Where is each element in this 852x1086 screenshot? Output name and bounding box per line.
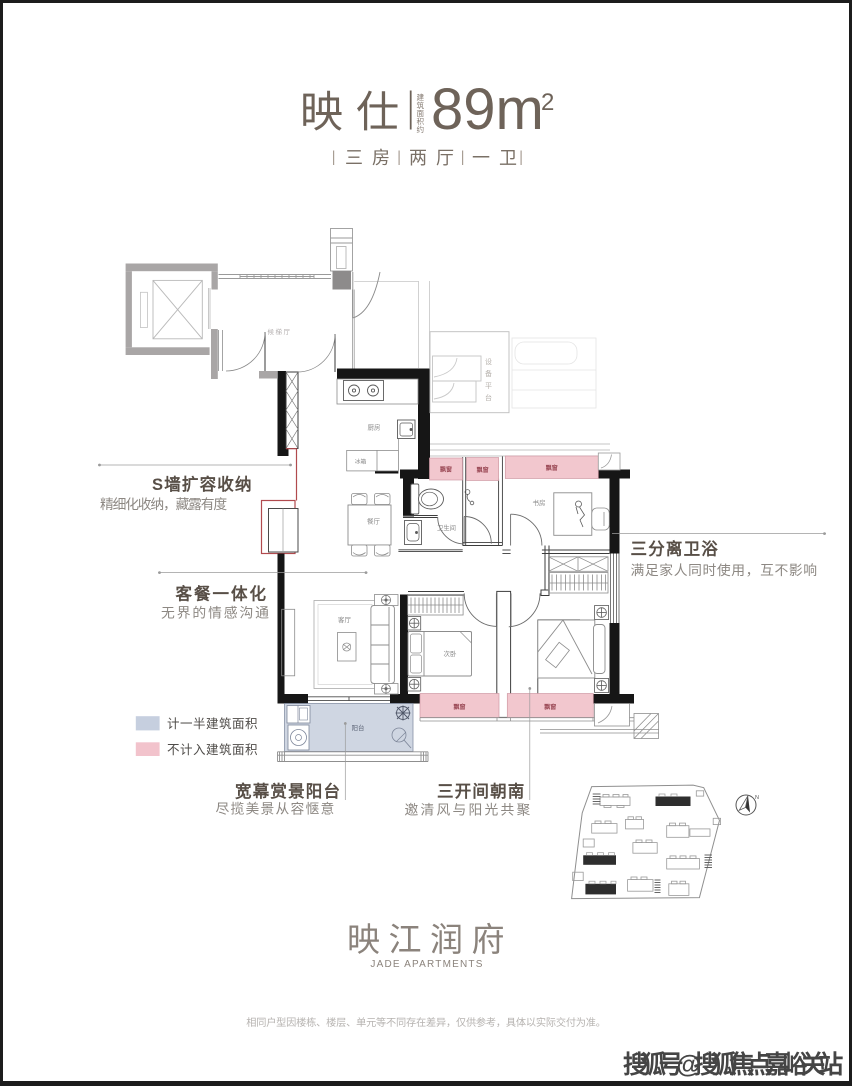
svg-text:飘窗: 飘窗 [545, 464, 558, 472]
svg-text:餐厅: 餐厅 [367, 517, 381, 526]
svg-text:映仕: 映仕 [300, 89, 412, 137]
svg-text:客厅: 客厅 [338, 615, 352, 624]
svg-text:冰箱: 冰箱 [355, 457, 367, 465]
svg-text:飘窗: 飘窗 [452, 703, 465, 711]
svg-text:书房: 书房 [533, 498, 546, 507]
svg-text:不计入建筑面积: 不计入建筑面积 [167, 742, 258, 757]
svg-text:卫生间: 卫生间 [437, 523, 456, 532]
svg-text:N: N [755, 795, 759, 801]
svg-text:两厅: 两厅 [409, 148, 463, 168]
svg-text:S墙扩容收纳: S墙扩容收纳 [152, 474, 253, 494]
svg-text:宽幕赏景阳台: 宽幕赏景阳台 [235, 781, 341, 801]
svg-text:约: 约 [417, 124, 425, 134]
svg-text:2: 2 [541, 89, 554, 116]
svg-text:设: 设 [485, 357, 492, 366]
svg-text:精细化收纳，藏露有度: 精细化收纳，藏露有度 [100, 497, 227, 512]
svg-text:相同户型因楼栋、楼层、单元等不同存在差异，仅供参考，具体以实: 相同户型因楼栋、楼层、单元等不同存在差异，仅供参考，具体以实际交付为准。 [246, 1016, 606, 1029]
svg-text:无界的情感沟通: 无界的情感沟通 [161, 605, 271, 621]
svg-text:三房: 三房 [345, 148, 399, 168]
svg-text:次卧: 次卧 [444, 649, 458, 658]
svg-text:一卫: 一卫 [472, 148, 526, 168]
svg-text:三开间朝南: 三开间朝南 [437, 781, 526, 801]
svg-text:计一半建筑面积: 计一半建筑面积 [167, 716, 258, 731]
svg-text:候梯厅: 候梯厅 [268, 327, 292, 336]
svg-text:台: 台 [485, 393, 492, 402]
svg-text:平: 平 [485, 382, 492, 390]
svg-text:飘窗: 飘窗 [476, 466, 489, 474]
svg-text:尽揽美景从容惬意: 尽揽美景从容惬意 [216, 801, 336, 817]
svg-text:89m: 89m [431, 77, 544, 142]
svg-text:邀清风与阳光共聚: 邀清风与阳光共聚 [405, 803, 533, 818]
svg-text:厨房: 厨房 [368, 423, 381, 432]
svg-text:阳台: 阳台 [352, 723, 365, 732]
svg-text:三分离卫浴: 三分离卫浴 [631, 539, 720, 559]
svg-text:满足家人同时使用，互不影响: 满足家人同时使用，互不影响 [631, 562, 818, 578]
svg-text:飘窗: 飘窗 [439, 466, 452, 474]
svg-text:JADE APARTMENTS: JADE APARTMENTS [370, 959, 483, 970]
svg-text:搜狐号@搜狐焦点嘉峪关站: 搜狐号@搜狐焦点嘉峪关站 [623, 1050, 843, 1079]
svg-text:飘窗: 飘窗 [543, 703, 556, 711]
svg-text:映江润府: 映江润府 [347, 921, 513, 958]
svg-text:备: 备 [485, 369, 492, 378]
svg-text:客餐一体化: 客餐一体化 [175, 584, 269, 604]
